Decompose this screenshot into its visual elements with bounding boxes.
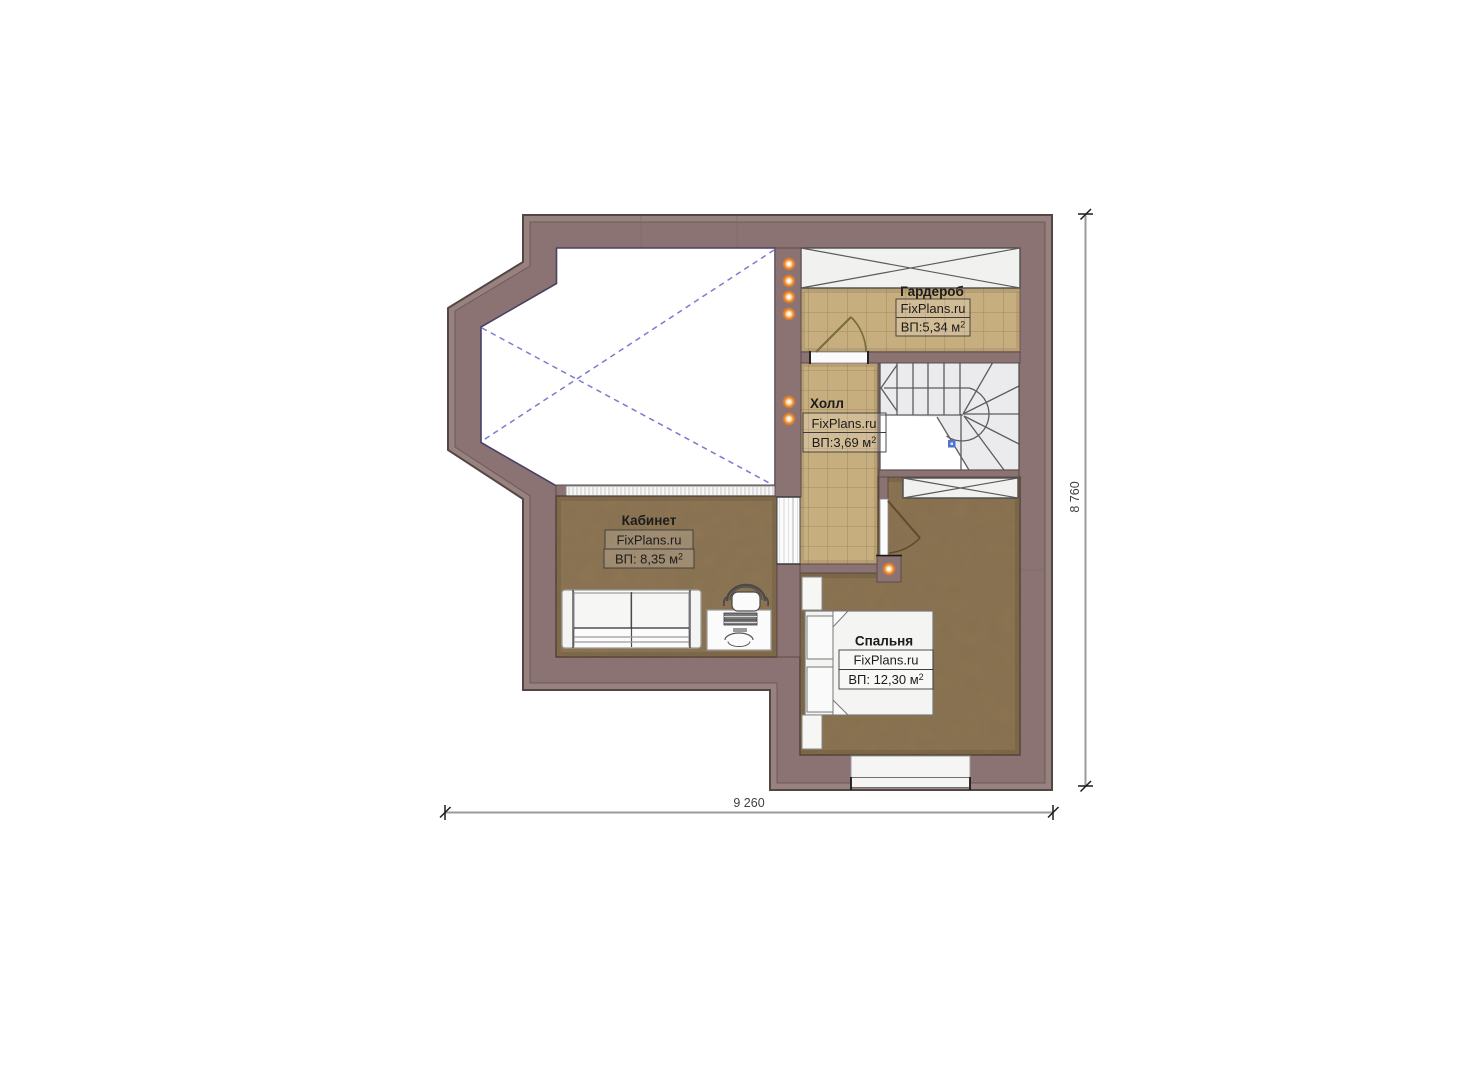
svg-text:9 260: 9 260	[733, 796, 764, 810]
svg-text:FixPlans.ru: FixPlans.ru	[811, 416, 876, 431]
svg-text:ВП: 12,30 м2: ВП: 12,30 м2	[848, 672, 923, 687]
svg-text:Спальня: Спальня	[855, 634, 913, 649]
svg-text:ВП: 8,35 м2: ВП: 8,35 м2	[615, 552, 683, 567]
svg-text:Гардероб: Гардероб	[900, 284, 964, 299]
svg-text:FixPlans.ru: FixPlans.ru	[853, 653, 918, 668]
svg-text:ВП:3,69 м2: ВП:3,69 м2	[812, 435, 877, 450]
svg-text:Кабинет: Кабинет	[622, 513, 677, 528]
svg-text:ВП:5,34 м2: ВП:5,34 м2	[901, 320, 966, 335]
svg-text:FixPlans.ru: FixPlans.ru	[900, 301, 965, 316]
svg-text:FixPlans.ru: FixPlans.ru	[616, 533, 681, 548]
svg-text:8 760: 8 760	[1068, 481, 1082, 512]
svg-text:Холл: Холл	[810, 396, 844, 411]
